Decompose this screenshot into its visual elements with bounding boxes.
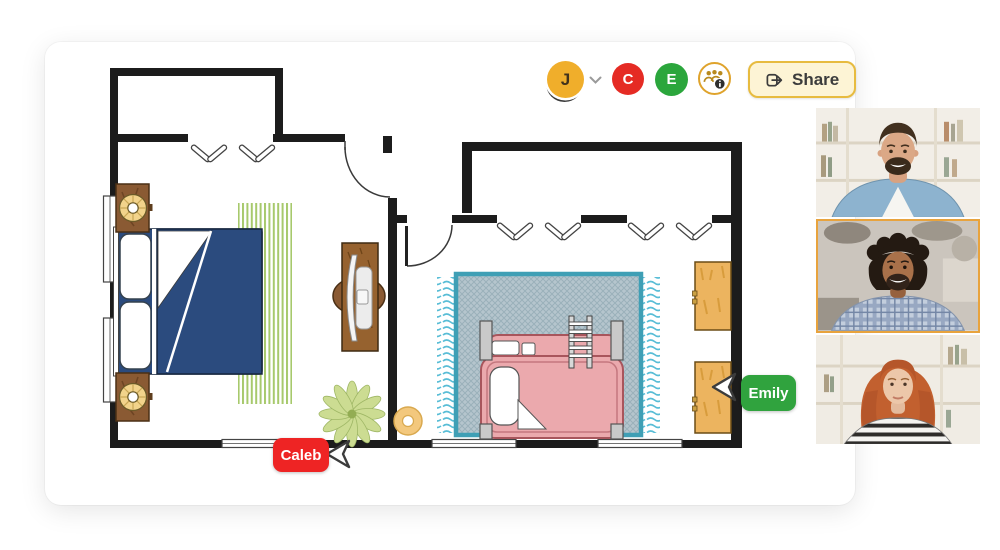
share-button-label: Share <box>792 70 839 90</box>
caleb-cursor-name: Caleb <box>281 447 322 464</box>
collaborator-c-initial: C <box>623 71 634 88</box>
video-participant-2-active[interactable] <box>816 219 980 332</box>
video-participant-1[interactable] <box>816 108 980 217</box>
caleb-cursor-label: Caleb <box>273 438 329 472</box>
emily-cursor-name: Emily <box>748 385 788 402</box>
chevron-down-icon[interactable] <box>589 76 602 85</box>
desk-with-chair[interactable] <box>333 243 385 351</box>
user-avatar[interactable]: J <box>547 61 584 98</box>
participant-2-video <box>818 221 978 330</box>
user-avatar-initial: J <box>561 70 570 90</box>
emily-cursor-label: Emily <box>741 375 796 411</box>
video-call-strip <box>816 108 980 444</box>
page: J C E Share Caleb <box>0 0 1000 550</box>
video-participant-3[interactable] <box>816 335 980 444</box>
nightstand-lamp-top[interactable] <box>116 184 153 232</box>
double-bed[interactable] <box>114 227 263 376</box>
share-forward-icon <box>765 70 784 89</box>
collaborators-button[interactable] <box>698 62 731 95</box>
collaborator-avatar-e[interactable]: E <box>655 63 688 96</box>
participant-3-video <box>816 335 980 444</box>
nightstand-lamp-bottom[interactable] <box>116 373 153 421</box>
collaborator-avatar-c[interactable]: C <box>612 63 644 95</box>
dresser-top[interactable] <box>693 262 732 330</box>
share-button[interactable]: Share <box>748 61 856 98</box>
emily-cursor-icon <box>708 369 740 405</box>
participant-1-video <box>816 108 980 217</box>
round-pouf[interactable] <box>394 407 422 435</box>
bunk-bed[interactable] <box>480 316 623 439</box>
collaborator-e-initial: E <box>666 71 676 88</box>
people-info-icon <box>701 65 728 92</box>
